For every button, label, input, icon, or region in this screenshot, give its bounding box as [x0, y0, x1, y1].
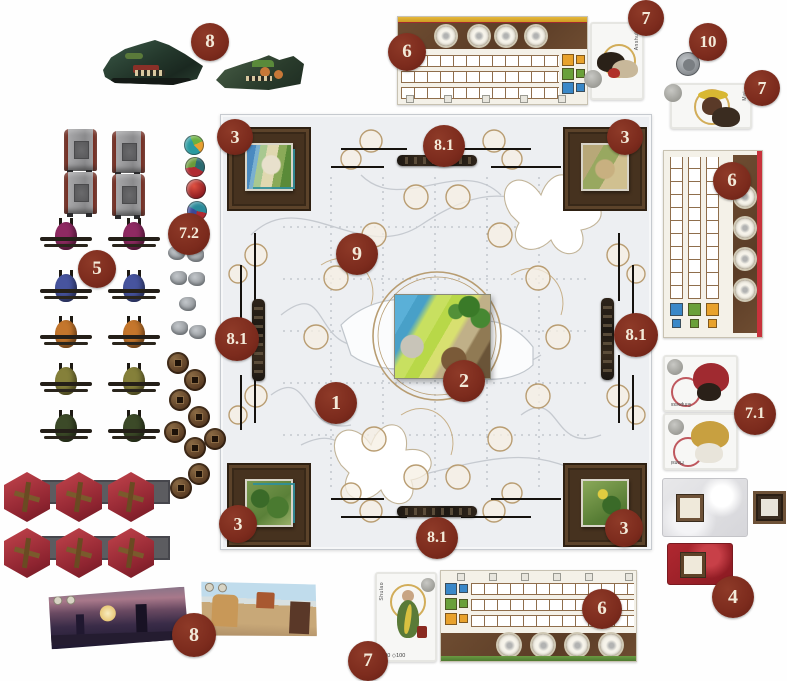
action-icon [735, 249, 755, 269]
edge-boat-bottom [397, 506, 477, 517]
main-board [220, 114, 652, 550]
action-icon [436, 26, 456, 46]
mini-icon [444, 95, 452, 103]
callout-start-token: 10 [689, 23, 727, 61]
deck-emblem [677, 495, 703, 521]
resource-square-orange [445, 613, 457, 625]
coin [188, 406, 210, 428]
boat-hull [111, 78, 191, 86]
coin [170, 477, 192, 499]
round-token [185, 157, 205, 177]
board-green-strip [441, 656, 636, 661]
track-line [341, 148, 407, 150]
boat-lantern [274, 70, 283, 79]
boat-meeple-green [108, 410, 160, 446]
card-name: Empress [671, 401, 691, 407]
bridge-token [112, 131, 145, 173]
mini-icon [520, 95, 528, 103]
track-squares-row [401, 71, 559, 83]
track-line [341, 516, 407, 518]
action-icon [566, 634, 588, 656]
bridge-token [64, 129, 97, 171]
mini-icon [558, 95, 566, 103]
resource-square-orange [576, 55, 585, 64]
player-screen-day [199, 579, 319, 640]
mini-icon [489, 573, 497, 581]
bridge-token [112, 174, 145, 216]
boat-meeple-magenta [108, 218, 160, 254]
screen-cliff [211, 594, 238, 627]
callout-player-board-top: 6 [388, 33, 426, 71]
mini-icon [457, 573, 465, 581]
cargo-bag [189, 325, 206, 339]
screen-badge [218, 583, 227, 592]
callout-card-top-right-2: 7 [744, 70, 780, 106]
coin [184, 437, 206, 459]
token-emblem [683, 59, 695, 71]
callout-edge-boat-top: 8.1 [423, 125, 465, 167]
character-card: Anshul [590, 22, 644, 100]
mini-icon [521, 573, 529, 581]
boat-meeple-green [40, 410, 92, 446]
character-card-flipped: Hansi [663, 413, 738, 470]
track-line [618, 355, 620, 423]
seal-token [584, 70, 602, 88]
resource-square-green [445, 598, 457, 610]
card-name: Shulao [379, 582, 385, 601]
resource-square-blue [445, 583, 457, 595]
boat-meeple-orange [108, 316, 160, 352]
board-brown-band [441, 633, 636, 658]
callout-board-region: 9 [336, 233, 378, 275]
mini-icon [585, 573, 593, 581]
action-icon [496, 26, 516, 46]
coin [167, 352, 189, 374]
action-icon [735, 218, 755, 238]
board-red-strip [757, 151, 762, 337]
deck-emblem [681, 553, 705, 577]
callout-corner-tile-tl: 3 [217, 119, 253, 155]
seal-token [667, 359, 683, 375]
cargo-bag [179, 297, 196, 311]
screen-tower [136, 604, 148, 632]
corner-marker-lines [253, 149, 295, 189]
resource-square-blue [562, 82, 574, 94]
action-icon [498, 634, 520, 656]
action-icon [735, 280, 755, 300]
track-squares-row [401, 87, 559, 99]
dragon-boat-small [216, 52, 304, 92]
callout-player-board-bottom: 6 [582, 589, 622, 629]
callout-boat-meeples: 5 [78, 250, 116, 288]
card-values: ◇20 ◇100 [380, 653, 433, 659]
resource-square-green [688, 303, 701, 316]
coin [204, 428, 226, 450]
callout-edge-boat-right: 8.1 [614, 313, 658, 357]
corner-marker-lines [253, 483, 295, 523]
mini-icon [482, 95, 490, 103]
track-line [331, 166, 384, 168]
resource-square-green [459, 599, 468, 608]
screen-badge [205, 583, 214, 592]
track-line [491, 498, 561, 500]
boat-meeple-olive [40, 363, 92, 399]
coin [164, 421, 186, 443]
bridge-token [64, 172, 97, 214]
resource-square-green [690, 319, 699, 328]
board-brown-band [398, 23, 587, 49]
callout-player-board-right: 6 [713, 162, 751, 200]
boat-meeple-orange [40, 316, 92, 352]
character-card: Mai [670, 83, 752, 129]
card-figure [697, 383, 721, 401]
boat-roof [252, 60, 274, 67]
coin [169, 389, 191, 411]
screen-badge [53, 596, 62, 605]
boat-meeple-magenta [40, 218, 92, 254]
card-figure [695, 443, 723, 463]
cargo-bag [170, 271, 187, 285]
boat-meeple-olive [108, 363, 160, 399]
track-line [618, 233, 620, 301]
setup-diagram: Anshul Mai Empress [0, 0, 787, 681]
track-line [461, 148, 531, 150]
callout-corner-tile-bl: 3 [219, 505, 257, 543]
cargo-bag [171, 321, 188, 335]
action-icon [600, 634, 622, 656]
cargo-bag [188, 272, 205, 286]
callout-edge-boat-bottom: 8.1 [416, 517, 458, 559]
seal-watermark [421, 578, 435, 592]
track-line [240, 375, 242, 430]
edge-boat-right [601, 298, 614, 380]
dragon-boat-large [103, 40, 203, 90]
track-line [491, 166, 561, 168]
track-line [240, 265, 242, 325]
screen-sun [100, 605, 117, 622]
screen-tower [76, 614, 85, 634]
resource-square-blue [576, 83, 585, 92]
action-icon [526, 26, 546, 46]
screen-building [256, 592, 275, 609]
resource-square-orange [706, 303, 719, 316]
screen-tower [289, 601, 310, 634]
pavilion-tile [108, 528, 170, 580]
track-line [632, 375, 634, 430]
track-line [331, 498, 384, 500]
boat-roof [125, 53, 143, 59]
coin [184, 369, 206, 391]
player-board-top [397, 16, 588, 105]
callout-cards-right: 7.1 [734, 393, 776, 435]
mini-icon [406, 95, 414, 103]
boat-windows [246, 76, 272, 81]
seal-token [668, 419, 684, 435]
seal-token [664, 84, 682, 102]
screen-badge [66, 595, 75, 604]
round-token [186, 179, 206, 199]
card-figure [712, 107, 740, 127]
boat-meeple-blue [108, 270, 160, 306]
pavilion-tile [108, 472, 170, 524]
callout-dragon-boats: 8 [191, 23, 229, 61]
mini-icon [553, 573, 561, 581]
resource-square-blue [459, 584, 468, 593]
round-token [184, 135, 204, 155]
track-squares-column [688, 157, 701, 299]
boat-windows [135, 70, 165, 76]
card-figure-case [417, 626, 427, 638]
track-line [254, 233, 256, 301]
track-squares-column [670, 157, 683, 299]
coin [188, 463, 210, 485]
callout-round-tokens: 7.2 [168, 213, 210, 255]
resource-square-blue [672, 319, 681, 328]
resource-square-orange [562, 54, 574, 66]
callout-center-tile: 2 [443, 360, 485, 402]
screen-wall [51, 631, 185, 646]
card-figure [608, 68, 620, 78]
resource-square-orange [459, 614, 468, 623]
player-screen-night [47, 587, 189, 650]
callout-screens: 8 [172, 613, 216, 657]
character-card-flipped: Empress [663, 355, 738, 412]
action-icon [469, 26, 489, 46]
framed-tile [753, 491, 786, 524]
tile-face [761, 499, 778, 516]
callout-corner-tile-tr: 3 [607, 119, 643, 155]
callout-red-deck: 4 [712, 576, 754, 618]
resource-square-orange [708, 319, 717, 328]
mini-icon [625, 573, 633, 581]
resource-square-blue [670, 303, 683, 316]
callout-edge-boat-left: 8.1 [215, 317, 259, 361]
action-icon [532, 634, 554, 656]
callout-corner-tile-br: 3 [605, 509, 643, 547]
callout-main-board: 1 [315, 382, 357, 424]
callout-card-top-right-1: 7 [628, 0, 664, 36]
callout-card-bottom: 7 [348, 641, 388, 681]
resource-square-green [562, 68, 574, 80]
card-name: Hansi [671, 459, 684, 465]
gray-card-deck [662, 478, 748, 537]
